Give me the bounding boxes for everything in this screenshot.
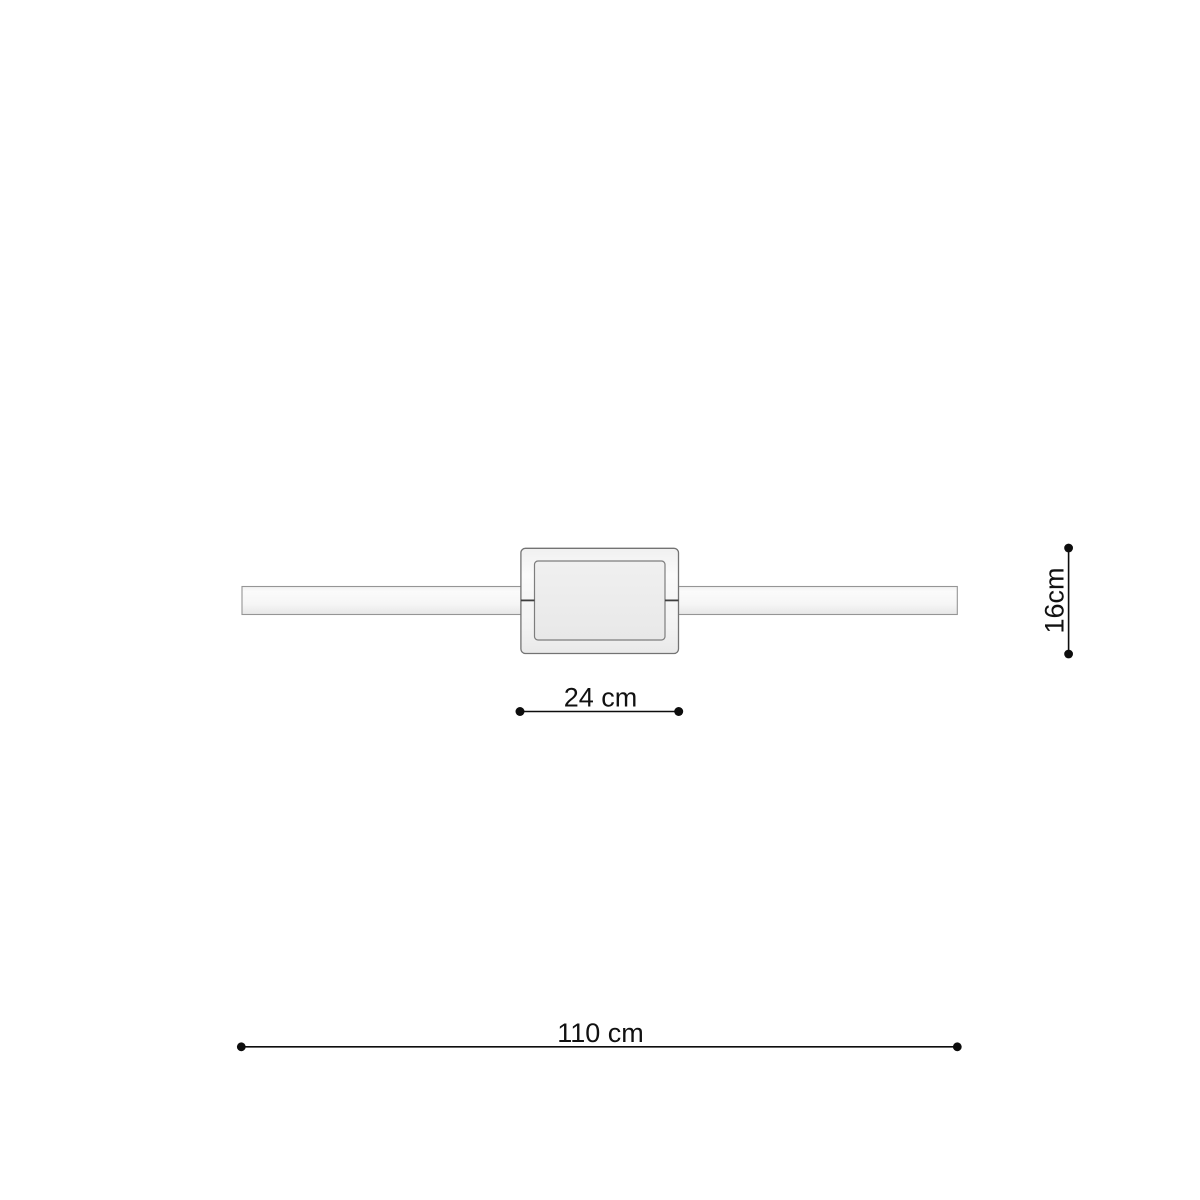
svg-text:16cm: 16cm bbox=[1039, 567, 1069, 633]
svg-text:110 cm: 110 cm bbox=[557, 1018, 644, 1048]
svg-text:24 cm: 24 cm bbox=[564, 683, 638, 713]
